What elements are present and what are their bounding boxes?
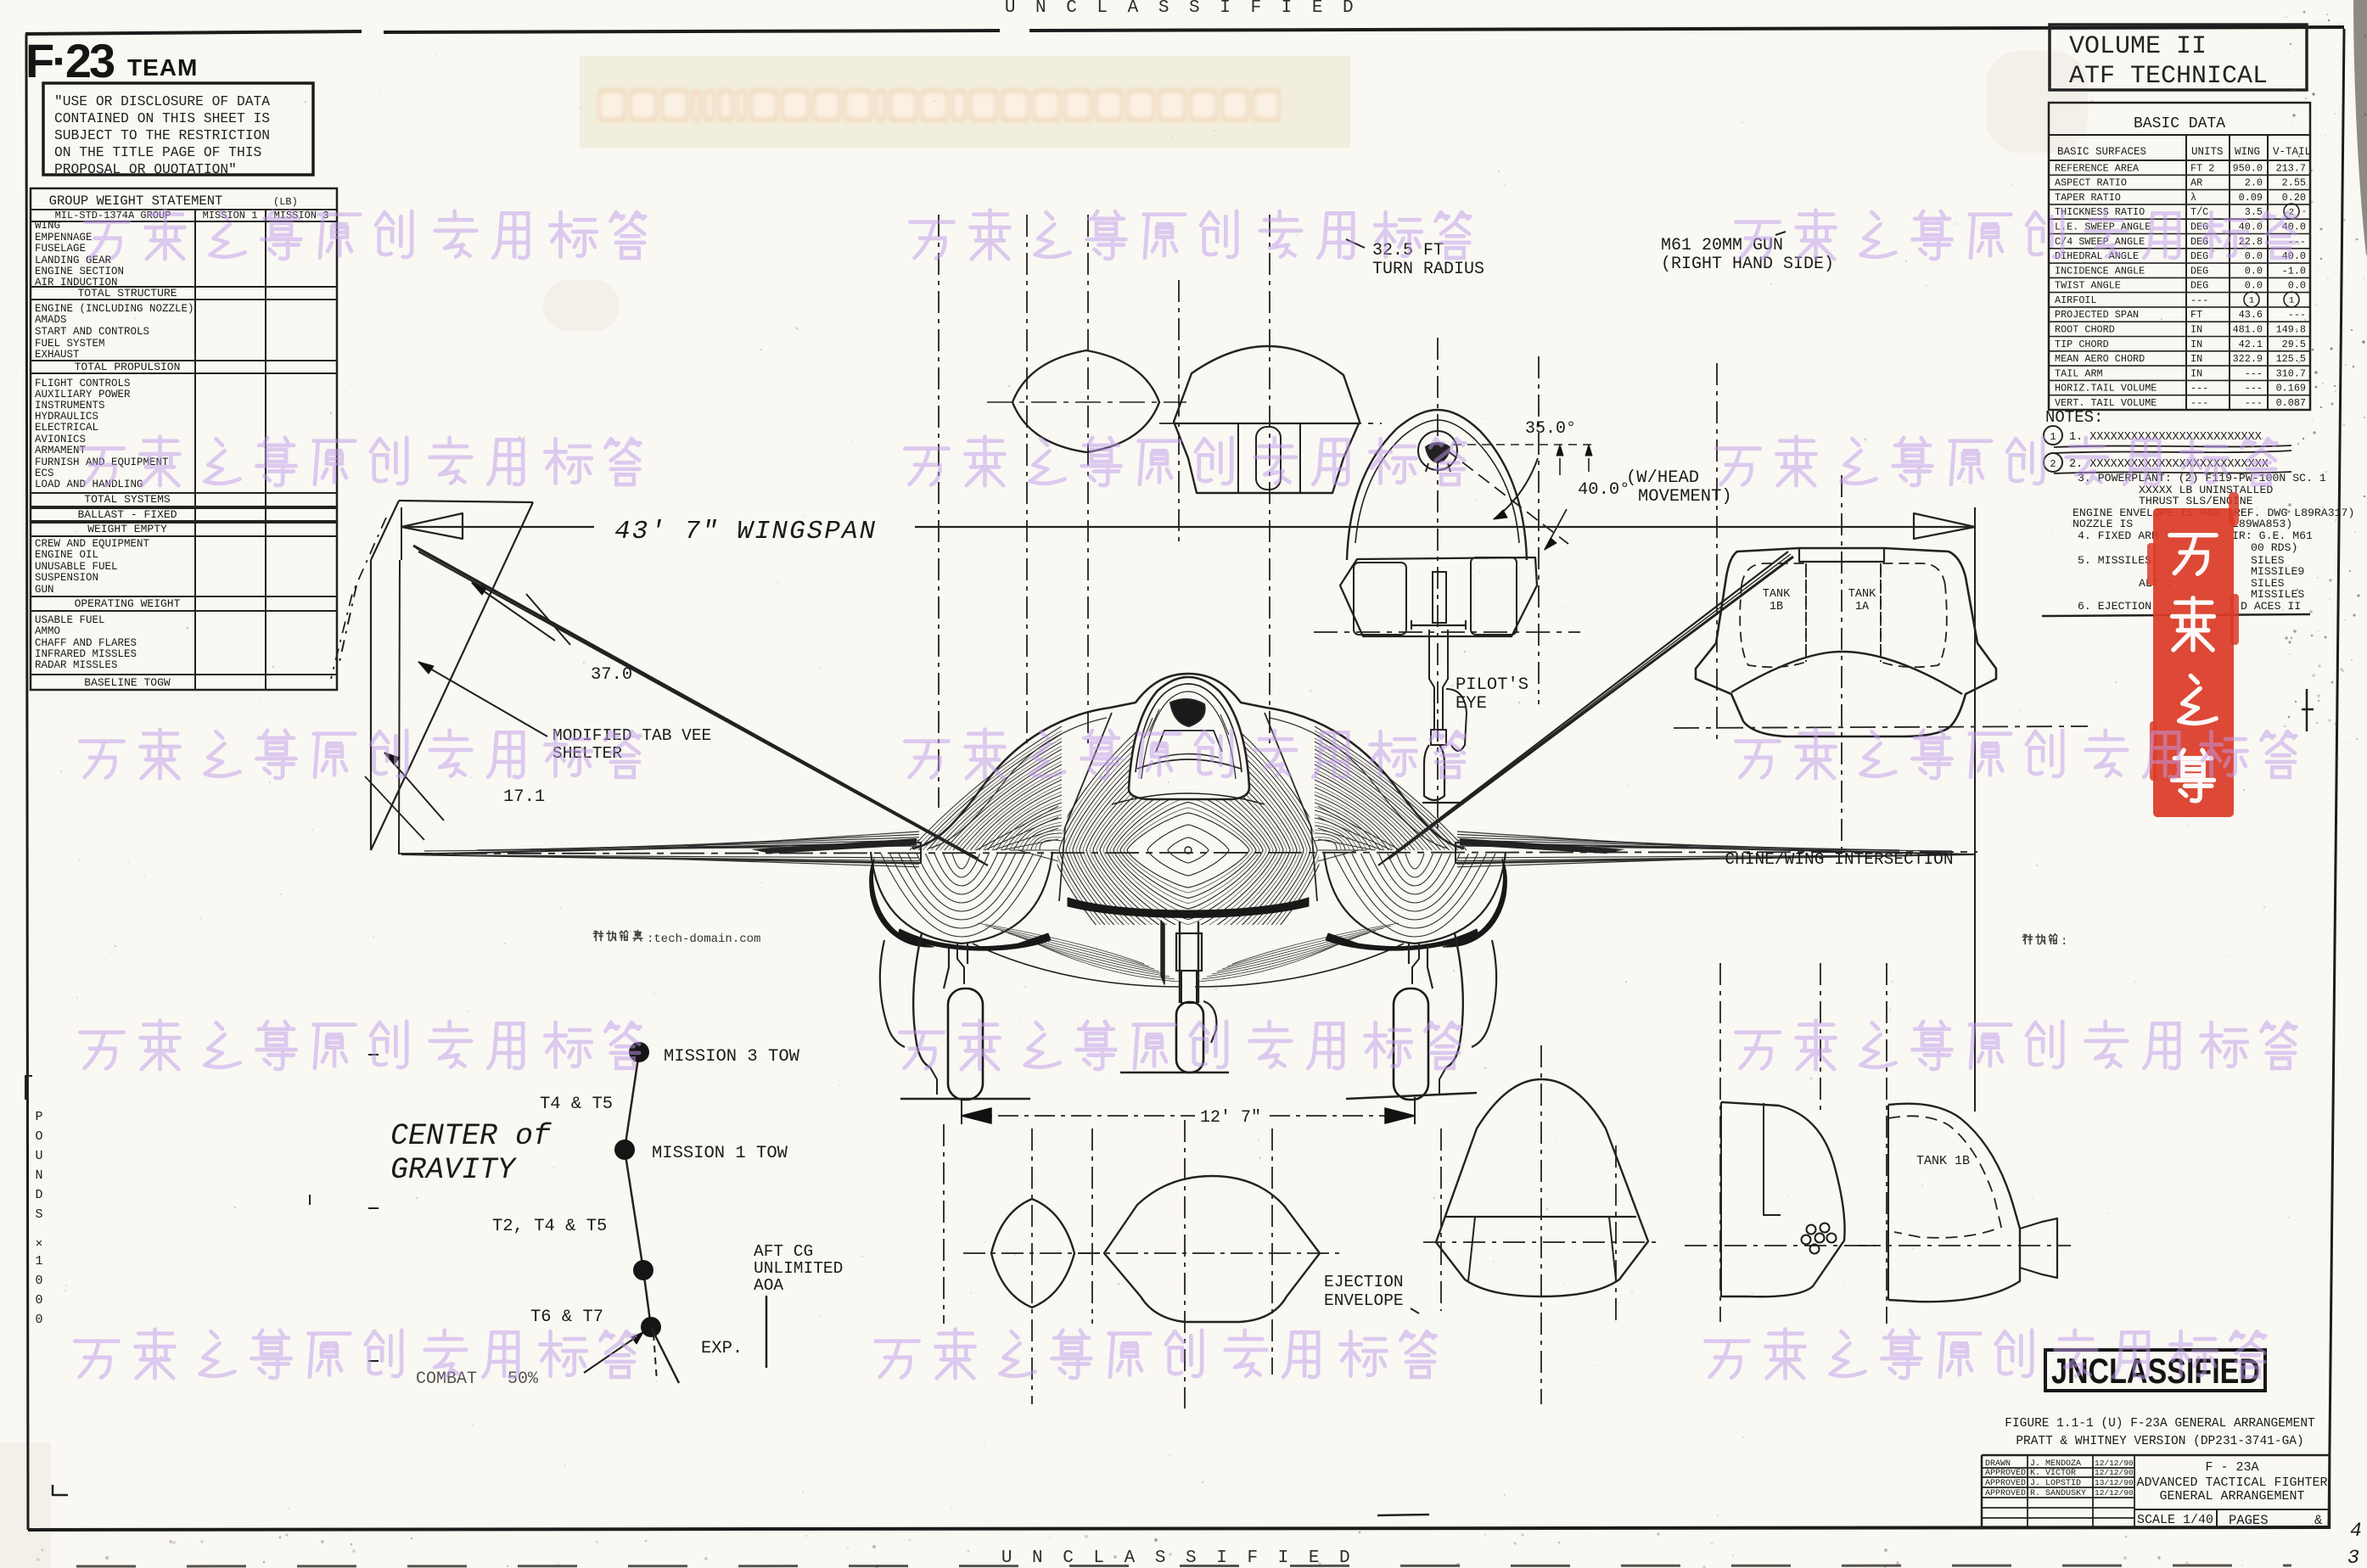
svg-text:HYDRAULICS: HYDRAULICS [35, 411, 98, 423]
svg-text:&: & [2314, 1513, 2322, 1528]
svg-text:43' 7" WINGSPAN: 43' 7" WINGSPAN [614, 517, 877, 546]
svg-text:"USE OR DISCLOSURE OF DATA: "USE OR DISCLOSURE OF DATA [54, 93, 270, 109]
svg-text:D: D [35, 1188, 42, 1202]
svg-text:4. FIXED ARM: 4. FIXED ARM [2078, 529, 2158, 542]
svg-text:0.20: 0.20 [2282, 192, 2306, 204]
svg-text:NOZZLE IS: NOZZLE IS [2073, 518, 2133, 530]
svg-text:FUSELAGE: FUSELAGE [35, 243, 86, 255]
svg-text:42.1: 42.1 [2239, 339, 2263, 350]
svg-text:0.09: 0.09 [2239, 192, 2263, 204]
svg-text:ENVELOPE: ENVELOPE [1324, 1291, 1404, 1310]
svg-text:AR: AR [2190, 177, 2202, 189]
svg-text:17.1: 17.1 [503, 787, 545, 807]
svg-text:LANDING GEAR: LANDING GEAR [35, 255, 112, 266]
svg-text:FUEL SYSTEM: FUEL SYSTEM [35, 338, 105, 350]
svg-text:950.0: 950.0 [2233, 162, 2263, 174]
svg-text:FT 2: FT 2 [2190, 162, 2214, 174]
svg-text:APPROVED: APPROVED [1985, 1469, 2026, 1478]
svg-text:SUSPENSION: SUSPENSION [35, 572, 98, 584]
svg-text:THICKNESS RATIO: THICKNESS RATIO [2055, 206, 2145, 218]
svg-text::: : [2061, 935, 2067, 949]
svg-text:PAGES: PAGES [2229, 1513, 2269, 1528]
svg-text:0: 0 [35, 1293, 42, 1308]
svg-text:TANK: TANK [1848, 588, 1876, 601]
svg-text:3: 3 [2347, 1547, 2359, 1568]
svg-text:R. SANDUSKY: R. SANDUSKY [2030, 1489, 2086, 1498]
svg-text:ADVANCED TACTICAL FIGHTER: ADVANCED TACTICAL FIGHTER [2136, 1476, 2327, 1490]
svg-text:IR: G.E. M61: IR: G.E. M61 [2232, 529, 2313, 542]
svg-text:BASIC SURFACES: BASIC SURFACES [2057, 146, 2146, 158]
svg-text:5. MISSILES:: 5. MISSILES: [2078, 554, 2158, 567]
svg-text:ENGINE SECTION: ENGINE SECTION [35, 266, 124, 277]
svg-text:2.0: 2.0 [2245, 177, 2263, 189]
svg-text:---: --- [2190, 397, 2208, 409]
svg-text:PROPOSAL OR QUOTATION": PROPOSAL OR QUOTATION" [54, 161, 237, 177]
svg-text:V-TAIL: V-TAIL [2273, 146, 2311, 158]
svg-text:PRATT & WHITNEY VERSION (DP231: PRATT & WHITNEY VERSION (DP231-3741-GA) [2016, 1435, 2303, 1448]
svg-text::tech-domain.com: :tech-domain.com [647, 932, 760, 946]
svg-text:λ: λ [2190, 192, 2196, 204]
svg-text:310.7: 310.7 [2276, 367, 2306, 379]
svg-text:TEAM: TEAM [127, 54, 198, 81]
svg-text:1A: 1A [1855, 601, 1870, 613]
svg-text:PILOT'S: PILOT'S [1456, 675, 1528, 695]
svg-text:29.5: 29.5 [2282, 339, 2306, 350]
svg-text:35.0°: 35.0° [1525, 419, 1576, 439]
svg-text:00 RDS): 00 RDS) [2251, 541, 2297, 554]
svg-text:CHAFF AND FLARES: CHAFF AND FLARES [35, 637, 137, 649]
svg-text:12/12/90: 12/12/90 [2095, 1459, 2134, 1468]
svg-text:ECS: ECS [35, 468, 54, 479]
svg-text:DEG: DEG [2190, 250, 2208, 262]
svg-text:NOTES:: NOTES: [2045, 408, 2103, 427]
svg-text:UNUSABLE FUEL: UNUSABLE FUEL [35, 561, 118, 573]
svg-text:P: P [35, 1110, 42, 1124]
svg-text:FIGURE 1.1-1 (U) F-23A GENERAL: FIGURE 1.1-1 (U) F-23A GENERAL ARRANGEME… [2005, 1417, 2315, 1431]
svg-text:L89WA853): L89WA853) [2232, 518, 2292, 530]
svg-text:(RIGHT HAND SIDE): (RIGHT HAND SIDE) [1661, 255, 1834, 274]
svg-text:481.0: 481.0 [2233, 324, 2263, 336]
svg-text:F - 23A: F - 23A [2205, 1460, 2258, 1475]
svg-text:---: --- [2245, 367, 2263, 379]
svg-text:IN: IN [2190, 353, 2202, 365]
svg-text:ENGINE (INCLUDING NOZZLE): ENGINE (INCLUDING NOZZLE) [35, 303, 194, 315]
svg-text:RADAR MISSLES: RADAR MISSLES [35, 659, 118, 671]
svg-text:12' 7": 12' 7" [1200, 1108, 1261, 1128]
svg-text:MEAN AERO CHORD: MEAN AERO CHORD [2055, 353, 2145, 365]
svg-text:TAPER RATIO: TAPER RATIO [2055, 192, 2121, 204]
svg-text:UNLIMITED: UNLIMITED [754, 1259, 843, 1278]
svg-text:CHINE/WING INTERSECTION: CHINE/WING INTERSECTION [1725, 850, 1953, 869]
svg-text:T4 & T5: T4 & T5 [540, 1095, 613, 1114]
svg-text:---: --- [2288, 309, 2306, 321]
svg-text:REFERENCE AREA: REFERENCE AREA [2055, 162, 2140, 174]
svg-text:J. LOPSTID: J. LOPSTID [2030, 1479, 2081, 1488]
svg-text:37.0: 37.0 [591, 665, 632, 685]
svg-text:MISSION 1 TOW: MISSION 1 TOW [652, 1144, 788, 1163]
svg-text:3. POWERPLANT: (2) F119-PW-100: 3. POWERPLANT: (2) F119-PW-100N SC. 1 [2078, 472, 2326, 484]
svg-text:T/C: T/C [2190, 206, 2208, 218]
svg-text:U N C L A S S I F I E D: U N C L A S S I F I E D [1005, 0, 1358, 18]
svg-text:ELECTRICAL: ELECTRICAL [35, 422, 98, 434]
svg-text:BASELINE TOGW: BASELINE TOGW [84, 676, 171, 689]
svg-text:MISSILE9: MISSILE9 [2251, 565, 2304, 578]
svg-text:0.169: 0.169 [2276, 383, 2306, 395]
svg-text:T2, T4 & T5: T2, T4 & T5 [492, 1217, 607, 1236]
svg-text:6. EJECTION: 6. EJECTION [2078, 600, 2151, 613]
svg-text:213.7: 213.7 [2276, 162, 2306, 174]
svg-text:TOTAL PROPULSION: TOTAL PROPULSION [75, 361, 181, 373]
svg-text:SCALE 1/40: SCALE 1/40 [2137, 1513, 2213, 1527]
svg-text:3.5: 3.5 [2245, 206, 2263, 218]
svg-text:COMBAT 50%: COMBAT 50% [416, 1369, 539, 1389]
svg-text:0.0: 0.0 [2245, 280, 2263, 292]
svg-text:DRAWN: DRAWN [1985, 1459, 2011, 1469]
svg-text:F·23: F·23 [25, 34, 115, 87]
svg-text:ARMAMENT: ARMAMENT [35, 445, 87, 456]
svg-text:VOLUME II: VOLUME II [2069, 32, 2207, 61]
svg-text:MISSION 3 TOW: MISSION 3 TOW [664, 1047, 800, 1067]
svg-text:DEG: DEG [2190, 265, 2208, 277]
svg-text:1: 1 [2050, 431, 2056, 443]
svg-text:VERT. TAIL VOLUME: VERT. TAIL VOLUME [2055, 397, 2157, 409]
svg-text:CENTER of: CENTER of [390, 1119, 552, 1153]
svg-text:IN: IN [2190, 339, 2202, 350]
svg-text:APPROVED: APPROVED [1985, 1489, 2026, 1498]
svg-text:1. XXXXXXXXXXXXXXXXXXXXXXXXX: 1. XXXXXXXXXXXXXXXXXXXXXXXXX [2069, 431, 2262, 444]
svg-text:AFT CG: AFT CG [754, 1242, 813, 1261]
svg-text:CREW AND EQUIPMENT: CREW AND EQUIPMENT [35, 538, 150, 550]
svg-text:SUBJECT TO THE RESTRICTION: SUBJECT TO THE RESTRICTION [54, 127, 270, 143]
svg-text:WEIGHT EMPTY: WEIGHT EMPTY [87, 523, 167, 535]
svg-text:IN: IN [2190, 367, 2202, 379]
svg-text:U: U [35, 1149, 42, 1163]
svg-text:FLIGHT CONTROLS: FLIGHT CONTROLS [35, 378, 131, 389]
svg-text:0: 0 [35, 1274, 42, 1288]
svg-text:MISSION 1: MISSION 1 [203, 210, 258, 221]
svg-text:J. MENDOZA: J. MENDOZA [2030, 1459, 2081, 1469]
svg-text:125.5: 125.5 [2276, 353, 2306, 365]
svg-text:USABLE FUEL: USABLE FUEL [35, 614, 105, 626]
svg-text:0.087: 0.087 [2276, 397, 2306, 409]
svg-text:TIP CHORD: TIP CHORD [2055, 339, 2109, 350]
svg-text:(W/HEAD: (W/HEAD [1626, 468, 1699, 488]
svg-text:---: --- [2245, 397, 2263, 409]
svg-text:DEG: DEG [2190, 280, 2208, 292]
svg-text:GUN: GUN [35, 584, 54, 596]
svg-text:2: 2 [2050, 458, 2056, 470]
svg-text:O: O [35, 1129, 42, 1144]
svg-text:---: --- [2245, 383, 2263, 395]
svg-text:322.9: 322.9 [2233, 353, 2263, 365]
svg-text:TWIST ANGLE: TWIST ANGLE [2055, 280, 2121, 292]
svg-text:12/12/90: 12/12/90 [2095, 1488, 2134, 1498]
svg-text:ASPECT RATIO: ASPECT RATIO [2055, 177, 2127, 189]
svg-text:ENGINE OIL: ENGINE OIL [35, 549, 98, 561]
svg-text:EXHAUST: EXHAUST [35, 349, 80, 361]
svg-text:-1.0: -1.0 [2282, 265, 2306, 277]
svg-text:N: N [35, 1168, 42, 1183]
svg-text:EJECTION: EJECTION [1324, 1273, 1404, 1291]
svg-text:---: --- [2190, 383, 2208, 395]
svg-text:IN: IN [2190, 324, 2202, 336]
svg-text:AUXILIARY POWER: AUXILIARY POWER [35, 389, 131, 400]
svg-text:EYE: EYE [1456, 694, 1487, 714]
svg-text:CONTAINED ON THIS SHEET IS: CONTAINED ON THIS SHEET IS [54, 110, 270, 126]
svg-text:1: 1 [2289, 295, 2294, 305]
svg-text:(LB): (LB) [273, 196, 298, 208]
svg-text:AMMO: AMMO [35, 625, 60, 637]
svg-text:0.0: 0.0 [2245, 250, 2263, 262]
svg-text:2.55: 2.55 [2282, 177, 2306, 189]
svg-text:×: × [35, 1237, 42, 1252]
svg-text:T6 & T7: T6 & T7 [530, 1308, 603, 1327]
svg-text:GROUP WEIGHT STATEMENT: GROUP WEIGHT STATEMENT [49, 193, 223, 209]
svg-text:40.0°: 40.0° [1578, 480, 1630, 500]
svg-text:1B: 1B [1770, 601, 1783, 613]
svg-text:TANK: TANK [1763, 588, 1791, 601]
svg-text:D ACES II: D ACES II [2241, 600, 2301, 613]
svg-text:WING: WING [2235, 146, 2260, 158]
svg-text:0: 0 [35, 1313, 42, 1327]
svg-text:K. VICTOR: K. VICTOR [2030, 1469, 2076, 1478]
svg-text:PROJECTED SPAN: PROJECTED SPAN [2055, 309, 2139, 321]
svg-text:APPROVED: APPROVED [1985, 1479, 2026, 1488]
svg-text:INFRARED MISSLES: INFRARED MISSLES [35, 648, 137, 660]
svg-text:FT: FT [2190, 309, 2202, 321]
svg-text:43.6: 43.6 [2239, 309, 2263, 321]
svg-text:S: S [35, 1207, 42, 1222]
svg-text:149.8: 149.8 [2276, 324, 2306, 336]
svg-text:ON THE TITLE PAGE OF THIS: ON THE TITLE PAGE OF THIS [54, 144, 261, 160]
svg-text:AIRFOIL: AIRFOIL [2055, 294, 2097, 306]
svg-text:ROOT CHORD: ROOT CHORD [2055, 324, 2115, 336]
svg-text:TOTAL SYSTEMS: TOTAL SYSTEMS [84, 493, 171, 506]
svg-text:1: 1 [2249, 295, 2254, 305]
svg-text:0.0: 0.0 [2288, 280, 2306, 292]
svg-text:BASIC DATA: BASIC DATA [2134, 115, 2225, 132]
svg-text:TOTAL STRUCTURE: TOTAL STRUCTURE [77, 287, 177, 300]
svg-text:EMPENNAGE: EMPENNAGE [35, 232, 93, 244]
svg-text:INCIDENCE ANGLE: INCIDENCE ANGLE [2055, 265, 2145, 277]
svg-text:HORIZ.TAIL VOLUME: HORIZ.TAIL VOLUME [2055, 383, 2157, 395]
svg-text:OPERATING WEIGHT: OPERATING WEIGHT [75, 597, 181, 610]
svg-text:DIHEDRAL ANGLE: DIHEDRAL ANGLE [2055, 250, 2139, 262]
svg-text:BALLAST - FIXED: BALLAST - FIXED [77, 508, 177, 521]
svg-text:4: 4 [2350, 1520, 2362, 1542]
svg-text:AVIONICS: AVIONICS [35, 434, 86, 445]
svg-text:MOVEMENT): MOVEMENT) [1638, 487, 1732, 507]
svg-text:13/12/90: 13/12/90 [2095, 1478, 2134, 1487]
svg-text:12/12/90: 12/12/90 [2095, 1468, 2134, 1477]
svg-text:UNITS: UNITS [2191, 146, 2224, 158]
svg-text:WING: WING [35, 220, 60, 232]
svg-text:INSTRUMENTS: INSTRUMENTS [35, 400, 105, 412]
svg-text:TURN RADIUS: TURN RADIUS [1372, 260, 1484, 279]
svg-text:GRAVITY: GRAVITY [390, 1153, 518, 1187]
svg-text:2. XXXXXXXXXXXXXXXXXXXXXXXXXX: 2. XXXXXXXXXXXXXXXXXXXXXXXXXX [2069, 458, 2269, 471]
svg-text:AOA: AOA [754, 1276, 783, 1295]
svg-text:ATF TECHNICAL: ATF TECHNICAL [2069, 62, 2268, 91]
svg-text:TAIL ARM: TAIL ARM [2055, 367, 2103, 379]
svg-text:---: --- [2190, 294, 2208, 306]
svg-text:TANK 1B: TANK 1B [1916, 1154, 1970, 1168]
svg-text:GENERAL ARRANGEMENT: GENERAL ARRANGEMENT [2159, 1489, 2304, 1504]
svg-text:EXP.: EXP. [701, 1339, 743, 1358]
svg-text:1: 1 [35, 1254, 42, 1268]
svg-text:0.0: 0.0 [2245, 265, 2263, 277]
svg-text:START AND CONTROLS: START AND CONTROLS [35, 326, 149, 338]
svg-text:AMADS: AMADS [35, 314, 67, 326]
